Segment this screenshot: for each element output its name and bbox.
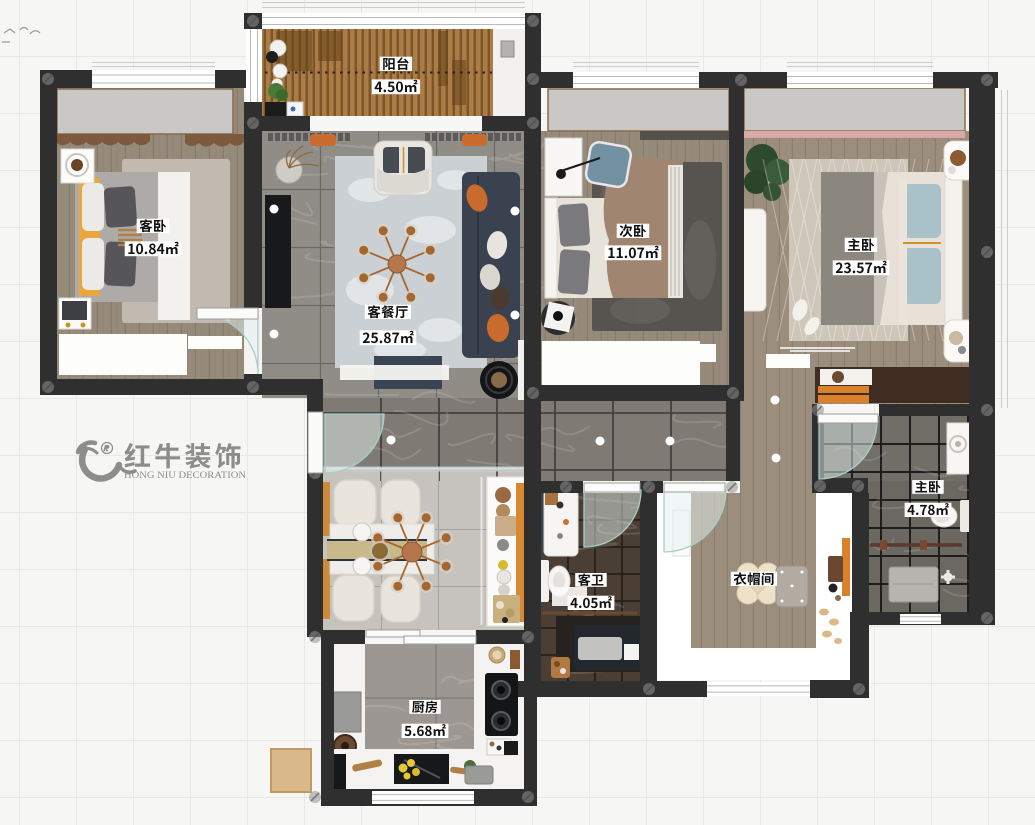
svg-text:HONG NIU DECORATION: HONG NIU DECORATION <box>124 471 246 481</box>
